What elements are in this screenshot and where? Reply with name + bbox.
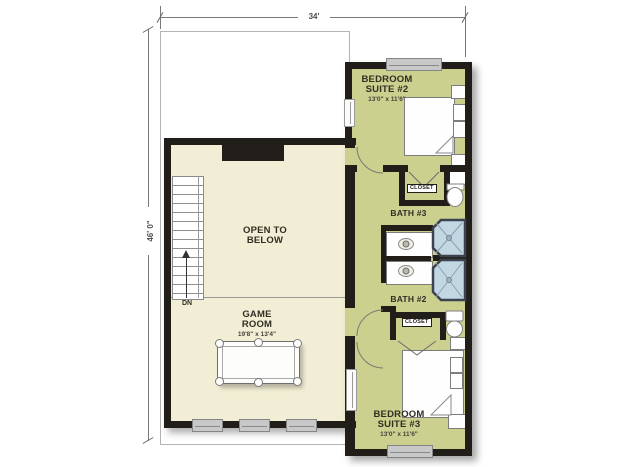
vanity-bath3 bbox=[386, 232, 433, 258]
pool-table-rail bbox=[222, 346, 295, 379]
wall bbox=[345, 449, 387, 456]
window bbox=[239, 419, 270, 432]
headboard-pillow bbox=[450, 373, 463, 389]
headboard-pillow bbox=[450, 357, 463, 373]
vanity-bath2 bbox=[386, 261, 433, 285]
nightstand bbox=[450, 337, 466, 350]
label-bath-3: BATH #3 bbox=[381, 209, 436, 218]
wall bbox=[431, 449, 472, 456]
closet-wall bbox=[390, 312, 396, 340]
stair-direction-arrow bbox=[186, 257, 187, 298]
pool-pocket bbox=[215, 339, 224, 348]
wall bbox=[345, 138, 355, 148]
chimney bbox=[222, 138, 284, 161]
wall bbox=[381, 256, 431, 261]
label-stairs-down: DN bbox=[171, 300, 203, 307]
nightstand bbox=[451, 85, 466, 99]
label-bedroom-suite-3: BEDROOM SUITE #3 13'0" x 11'6" bbox=[362, 410, 436, 439]
dimension-label-height: 46' 0" bbox=[146, 207, 156, 255]
wall bbox=[164, 138, 171, 428]
wall bbox=[345, 165, 357, 172]
wall bbox=[381, 225, 433, 231]
stair-arrow-head bbox=[182, 250, 190, 258]
pool-pocket bbox=[293, 339, 302, 348]
window bbox=[286, 419, 317, 432]
pool-pocket bbox=[254, 338, 263, 347]
label-bedroom-suite-2: BEDROOM SUITE #2 13'0" x 11'6" bbox=[350, 75, 424, 104]
closet-wall bbox=[399, 200, 450, 206]
pool-pocket bbox=[215, 377, 224, 386]
pool-pocket bbox=[254, 378, 263, 387]
stair-rail bbox=[198, 176, 199, 298]
wall bbox=[465, 62, 472, 456]
label-bath-2: BATH #2 bbox=[381, 295, 436, 304]
staircase bbox=[172, 176, 204, 300]
bed-suite2 bbox=[404, 97, 455, 156]
wall bbox=[345, 172, 355, 308]
closet-wall bbox=[440, 312, 446, 340]
pool-pocket bbox=[293, 377, 302, 386]
window bbox=[387, 445, 433, 458]
window bbox=[386, 58, 442, 71]
floor-plan: 34' 46' 0" bbox=[0, 0, 623, 467]
dimension-label-width: 34' bbox=[298, 12, 330, 22]
window bbox=[346, 369, 357, 411]
pool-table bbox=[217, 341, 300, 384]
label-open-to-below: OPEN TO BELOW bbox=[230, 226, 300, 246]
window bbox=[192, 419, 223, 432]
label-game-room: GAME ROOM 19'8" x 13'4" bbox=[222, 310, 292, 339]
label-closet-bath2: CLOSET bbox=[402, 318, 432, 327]
label-closet-bath3: CLOSET bbox=[407, 184, 437, 193]
